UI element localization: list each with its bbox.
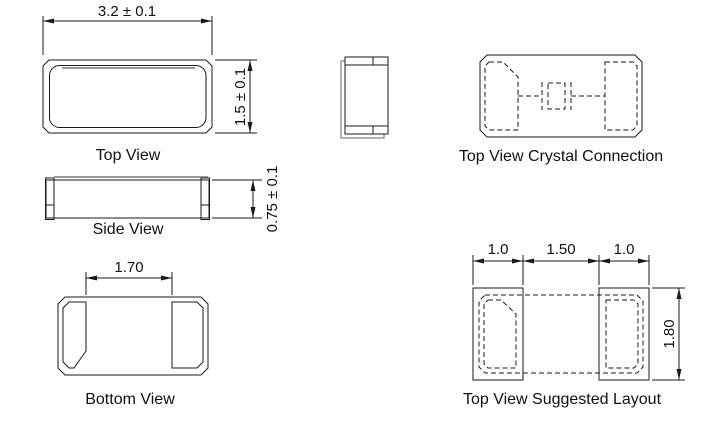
top-view-outline bbox=[43, 60, 212, 133]
top-view-height-dim: 1.5 ± 0.1 bbox=[232, 68, 249, 126]
crystal-connection-view: Top View Crystal Connection bbox=[459, 55, 663, 165]
top-view-width-dim: 3.2 ± 0.1 bbox=[98, 3, 156, 20]
layout-height-dim: 1.80 bbox=[661, 319, 678, 348]
end-view-body bbox=[345, 57, 388, 134]
crystal-connection-label: Top View Crystal Connection bbox=[459, 148, 663, 165]
suggested-layout-label: Top View Suggested Layout bbox=[463, 391, 662, 408]
bottom-view-spacing-dim: 1.70 bbox=[114, 259, 143, 276]
side-view-label: Side View bbox=[93, 221, 164, 238]
crystal-connection-outline bbox=[480, 55, 642, 137]
layout-left-pad-dim: 1.0 bbox=[488, 241, 509, 258]
end-view bbox=[341, 57, 388, 138]
package-drawing-svg: 3.2 ± 0.1 1.5 ± 0.1 Top View 0.75 ± 0.1 … bbox=[0, 0, 713, 421]
layout-gap-dim: 1.50 bbox=[546, 241, 575, 258]
side-view-body bbox=[46, 180, 209, 218]
side-view-height-dim: 0.75 ± 0.1 bbox=[264, 166, 281, 233]
layout-right-pad-dim: 1.0 bbox=[614, 241, 635, 258]
top-view-label: Top View bbox=[96, 147, 161, 164]
layout-left-land bbox=[473, 288, 523, 380]
bottom-view-outline bbox=[58, 297, 208, 375]
drawing-canvas: 3.2 ± 0.1 1.5 ± 0.1 Top View 0.75 ± 0.1 … bbox=[0, 0, 713, 421]
bottom-view-label: Bottom View bbox=[85, 391, 175, 408]
